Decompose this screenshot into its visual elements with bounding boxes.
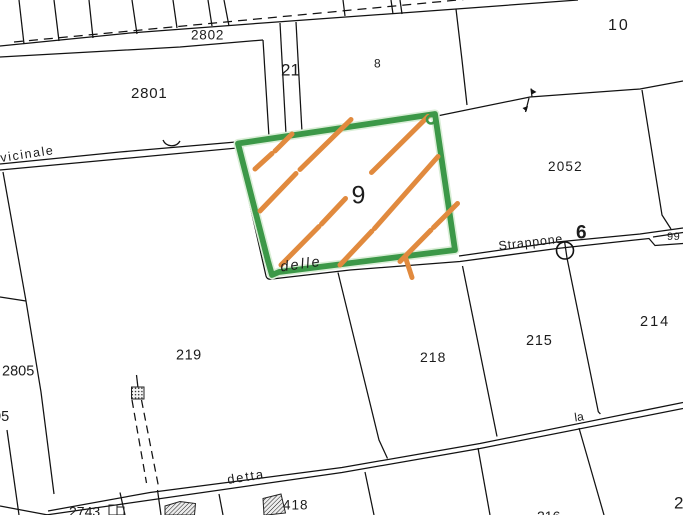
- svg-text:2802: 2802: [191, 28, 224, 43]
- svg-text:2743: 2743: [69, 504, 100, 515]
- svg-text:219: 219: [176, 348, 202, 364]
- svg-text:6: 6: [576, 223, 587, 244]
- svg-text:8: 8: [374, 57, 381, 71]
- svg-text:2801: 2801: [131, 85, 168, 102]
- svg-text:9: 9: [352, 182, 366, 210]
- svg-text:214: 214: [640, 314, 670, 330]
- svg-text:10: 10: [608, 17, 630, 34]
- svg-text:la: la: [573, 409, 585, 424]
- svg-text:2805: 2805: [2, 364, 34, 380]
- svg-text:215: 215: [526, 333, 553, 349]
- svg-text:05: 05: [0, 409, 9, 425]
- svg-text:218: 218: [420, 349, 446, 365]
- svg-text:21: 21: [281, 61, 300, 80]
- svg-text:216: 216: [537, 508, 561, 515]
- svg-text:418: 418: [283, 498, 309, 513]
- svg-text:Strappone: Strappone: [498, 232, 564, 253]
- svg-text:2052: 2052: [548, 159, 583, 174]
- svg-text:99: 99: [667, 231, 680, 243]
- svg-text:2: 2: [674, 494, 683, 513]
